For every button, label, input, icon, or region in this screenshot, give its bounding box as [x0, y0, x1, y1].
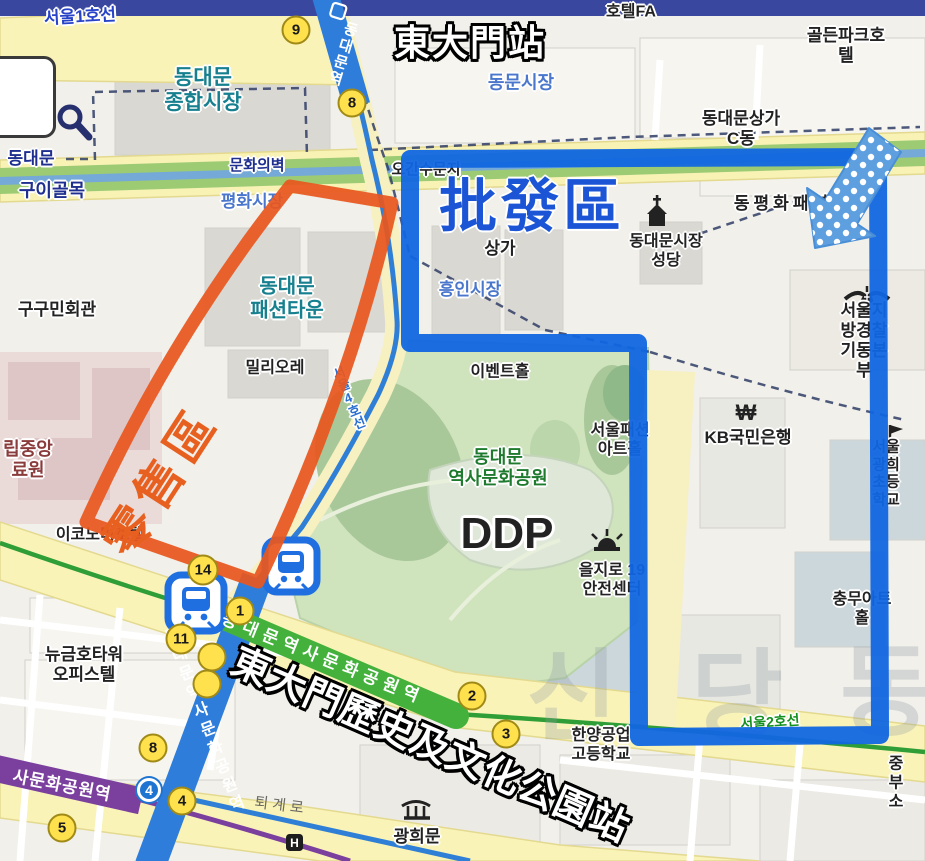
- wholesale-area-outline: [410, 157, 880, 737]
- annotation-overlay: [0, 0, 925, 861]
- retail-area-outline: [86, 186, 392, 582]
- map-canvas: ₩ H 신당동 서울1호선호텔FA골든파크호텔동대문 종합시장동문시장동대문상가…: [0, 0, 925, 861]
